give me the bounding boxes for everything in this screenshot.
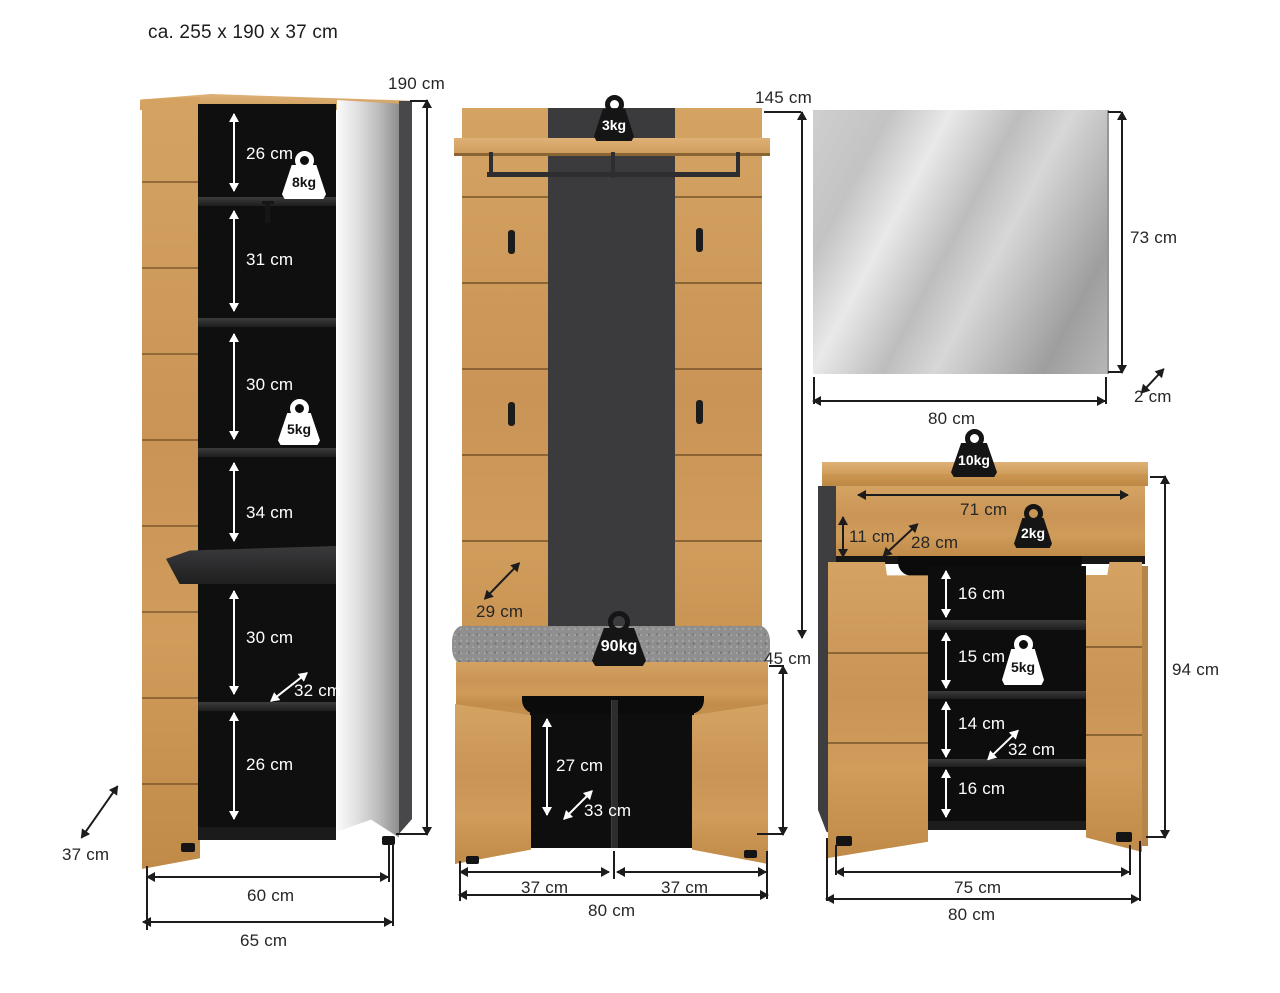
coatrack-height-dim-line — [801, 112, 803, 638]
overall-dimensions-title: ca. 255 x 190 x 37 cm — [148, 22, 338, 44]
wardrobe-height-dim-line — [426, 100, 428, 835]
wardrobe-section6-arrow — [233, 713, 235, 819]
shoe-cabinet-base — [928, 821, 1086, 830]
wardrobe-section2-label: 31 cm — [246, 250, 293, 270]
bench-inner-depth-label: 33 cm — [584, 801, 631, 821]
shoe-section2-label: 15 cm — [958, 647, 1005, 667]
mirror-width-label: 80 cm — [928, 409, 975, 429]
wardrobe-interior-hook-icon — [265, 203, 270, 223]
extension-line — [392, 844, 394, 926]
wardrobe-inner-width-label: 60 cm — [247, 886, 294, 906]
shoe-height-label: 94 cm — [1172, 660, 1219, 680]
coat-hook-icon — [696, 228, 703, 252]
coatrack-panel-stripe — [548, 108, 675, 640]
weight-body: 10kg — [951, 443, 997, 477]
wood-seam — [675, 540, 762, 542]
shoe-section3-label: 14 cm — [958, 714, 1005, 734]
coatrack-panel-depth-label: 29 cm — [476, 602, 523, 622]
bench-left-door-width-dim — [460, 871, 609, 873]
weight-body: 2kg — [1014, 518, 1052, 548]
shoe-section2-arrow — [945, 633, 947, 688]
shoe-inner-width-dim-line — [836, 871, 1129, 873]
weight-5kg-icon: 5kg — [278, 399, 320, 445]
wood-seam — [462, 196, 548, 198]
wardrobe-section5-label: 30 cm — [246, 628, 293, 648]
bench-inner-height-label: 27 cm — [556, 756, 603, 776]
shoe-inner-depth-label: 32 cm — [1008, 740, 1055, 760]
mirror-width-dim-line — [813, 400, 1105, 402]
wardrobe-section3-arrow — [233, 334, 235, 439]
weight-body: 3kg — [594, 109, 634, 141]
shoe-cabinet-right-edge — [1142, 566, 1148, 846]
shoe-width-dim-line — [826, 898, 1139, 900]
weight-body: 5kg — [1002, 649, 1044, 685]
coatrack-height-label: 145 cm — [755, 88, 812, 108]
wardrobe-section4-arrow — [233, 463, 235, 541]
weight-10kg-icon: 10kg — [951, 429, 997, 477]
bench-right-door-width-dim — [617, 871, 766, 873]
shoe-height-dim-line — [1164, 476, 1166, 838]
wardrobe-section4-label: 34 cm — [246, 503, 293, 523]
bench-right-door — [692, 704, 768, 864]
wood-seam — [675, 282, 762, 284]
wood-seam — [462, 540, 548, 542]
extension-line — [410, 100, 426, 102]
wardrobe-section6-label: 26 cm — [246, 755, 293, 775]
bench-foot — [744, 850, 757, 858]
shoe-width-label: 80 cm — [948, 905, 995, 925]
wardrobe-base — [198, 827, 336, 840]
shoe-cabinet-right-door — [1086, 562, 1142, 852]
wardrobe-shelf — [198, 448, 336, 457]
shoe-cabinet-foot — [1116, 832, 1132, 842]
wardrobe-foot — [181, 843, 195, 852]
furniture-dimensions-diagram: ca. 255 x 190 x 37 cm 190 cm 26 cm — [0, 0, 1280, 993]
wardrobe-open-door — [142, 97, 200, 869]
wardrobe-mirror-door-edge — [399, 101, 412, 845]
wardrobe-shelf — [198, 318, 336, 327]
shoe-section3-arrow — [945, 702, 947, 757]
coat-hook-icon — [508, 402, 515, 426]
bench-divider — [611, 700, 618, 848]
shoe-shelf — [928, 620, 1086, 630]
wardrobe-interior — [198, 104, 336, 840]
drawer-height-label: 11 cm — [849, 527, 895, 547]
shoe-shelf — [928, 759, 1086, 767]
bench-left-door — [455, 704, 531, 864]
shoe-section1-arrow — [945, 571, 947, 617]
extension-line — [396, 833, 426, 835]
wardrobe-shelf — [198, 702, 336, 711]
wood-seam — [675, 454, 762, 456]
shoe-section4-arrow — [945, 770, 947, 817]
coat-hook-icon — [508, 230, 515, 254]
coatrack-width-dim-line — [459, 894, 768, 896]
wardrobe-inner-width-dim-line — [147, 876, 388, 878]
wood-seam — [675, 368, 762, 370]
wardrobe-apron-shelf — [166, 546, 336, 584]
wardrobe-section5-arrow — [233, 591, 235, 694]
wardrobe-width-dim-line — [143, 921, 392, 923]
weight-body: 90kg — [592, 628, 646, 666]
wardrobe-inner-depth-label: 32 cm — [294, 681, 341, 701]
wood-seam — [462, 454, 548, 456]
wood-seam — [828, 652, 928, 654]
wardrobe-width-label: 65 cm — [240, 931, 287, 951]
bench-inner-height-arrow — [546, 719, 548, 815]
drawer-width-dim-line — [858, 494, 1128, 496]
wood-seam — [462, 368, 548, 370]
wardrobe-height-label: 190 cm — [388, 74, 445, 94]
wardrobe-section2-arrow — [233, 211, 235, 311]
mirror-height-dim-line — [1121, 112, 1123, 373]
coat-hook-icon — [696, 400, 703, 424]
wardrobe-depth-label: 37 cm — [62, 845, 109, 865]
weight-body: 5kg — [278, 413, 320, 445]
rail-support — [736, 152, 740, 174]
wardrobe-section3-label: 30 cm — [246, 375, 293, 395]
shoe-section4-label: 16 cm — [958, 779, 1005, 799]
coat-rail — [487, 172, 740, 177]
extension-line — [1139, 841, 1141, 901]
shoe-cabinet-foot — [836, 836, 852, 846]
extension-line — [613, 851, 615, 879]
weight-90kg-icon: 90kg — [592, 611, 646, 666]
drawer-width-label: 71 cm — [960, 500, 1007, 520]
weight-body: 8kg — [282, 165, 326, 199]
extension-line — [826, 838, 828, 901]
drawer-height-dim-line — [842, 517, 844, 557]
coatrack-width-label: 80 cm — [588, 901, 635, 921]
shoe-shelf — [928, 691, 1086, 699]
weight-2kg-icon: 2kg — [1014, 504, 1052, 548]
wood-seam — [462, 282, 548, 284]
wood-seam — [1086, 646, 1142, 648]
wood-seam — [675, 196, 762, 198]
weight-3kg-icon: 3kg — [594, 95, 634, 141]
shoe-cabinet-left-door — [828, 562, 928, 858]
drawer-depth-label: 28 cm — [911, 533, 958, 553]
wardrobe-section1-arrow — [233, 114, 235, 191]
wood-seam — [828, 742, 928, 744]
mirror-height-label: 73 cm — [1130, 228, 1177, 248]
weight-5kg-shoe-icon: 5kg — [1002, 635, 1044, 685]
wardrobe-depth-arrow — [81, 786, 119, 839]
extension-line — [764, 111, 801, 113]
wood-seam — [1086, 734, 1142, 736]
mirror-depth-label: 2 cm — [1134, 387, 1172, 407]
mirror — [813, 110, 1109, 374]
shoe-section1-label: 16 cm — [958, 584, 1005, 604]
rail-support — [489, 152, 493, 174]
bench-foot — [466, 856, 479, 864]
shoe-inner-width-label: 75 cm — [954, 878, 1001, 898]
weight-8kg-icon: 8kg — [282, 151, 326, 199]
shoe-cabinet-interior — [928, 566, 1086, 830]
bench-height-dim-line — [782, 666, 784, 835]
wardrobe-mirror-door — [337, 100, 399, 848]
